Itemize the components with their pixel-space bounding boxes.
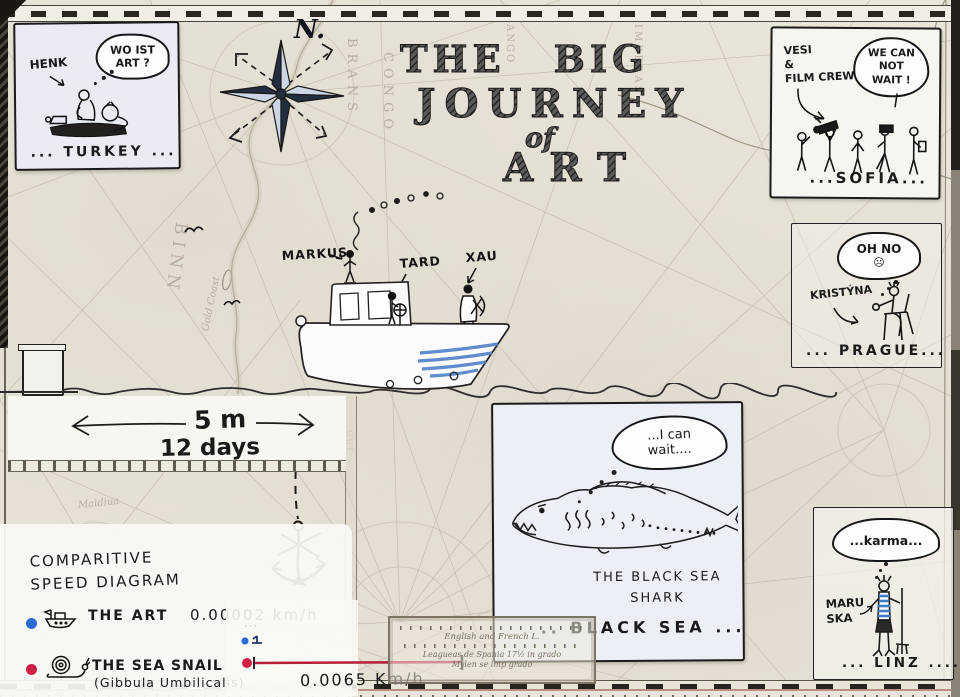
measurement-box: 5 m 12 days <box>8 396 346 472</box>
sofia-bubble-tail <box>891 93 901 109</box>
xau-figure <box>460 285 484 324</box>
bow-knob <box>296 316 306 326</box>
art-label: THE ART <box>88 608 168 624</box>
art-speed-dot <box>26 618 37 629</box>
sofia-caption: ...SOFIA... <box>809 169 928 188</box>
linz-label-arrow-icon <box>858 600 878 616</box>
snail-speed-dot <box>26 664 37 675</box>
title-line-1: THE BIG <box>400 37 649 81</box>
old-map-scale-box: English and French L. Leagueas de Spania… <box>388 616 596 684</box>
old-scale-bar <box>8 460 346 472</box>
snail-latin-label: (Gibbula Umbilicalis) <box>94 675 244 690</box>
artwork-map: BINN Gold Coast CONGO BRANS IMBERAS ANGO… <box>0 0 960 697</box>
bird-mark-icon <box>183 224 205 236</box>
turkey-thought-bubble: WO IST ART ? <box>95 33 169 80</box>
top-ruler-border <box>0 5 960 22</box>
scale-box-line-1: English and French L. <box>390 632 594 642</box>
sad-face-icon: ☹ <box>873 257 884 269</box>
distance-label: 5 m <box>194 404 247 435</box>
left-map-border <box>0 0 8 348</box>
dock-platform-line <box>0 391 78 393</box>
snail-icon <box>44 652 90 680</box>
duration-label: 12 days <box>160 434 260 462</box>
title-line-2: JOURNEY <box>414 81 685 127</box>
crew-label-tard: TARD <box>399 253 441 271</box>
crew-label-markus: MARKUS <box>281 245 348 263</box>
art-speed-faint-dots: ··· <box>244 627 264 631</box>
prague-figure <box>864 282 926 346</box>
shark-thought-bubble: ...I can wait.... <box>610 413 728 472</box>
prague-label-arrow-icon <box>832 304 864 328</box>
smoke-puffs <box>370 192 443 213</box>
title-block: THE BIG JOURNEY of ART <box>375 25 685 190</box>
compass-rose: N. <box>210 10 360 180</box>
turkey-character-label: HENK <box>29 55 68 72</box>
art-boat-icon <box>42 606 80 630</box>
prague-bubble-text: OH NO <box>857 243 902 256</box>
linz-figure <box>856 572 926 666</box>
title-line-4: ART <box>502 145 642 190</box>
linz-thought-bubble: ...karma... <box>832 518 940 562</box>
panel-sofia: VESI & FILM CREW WE CAN NOT WAIT ! ...SO… <box>769 26 941 199</box>
scale-box-line-2: Leagueas de Spania 17½ in grado <box>390 650 594 659</box>
sofia-speech-bubble: WE CAN NOT WAIT ! <box>853 37 929 98</box>
panel-prague: OH NO ☹ KRISTÝNA ... PRAGUE... <box>791 223 942 368</box>
speed-diagram-title: COMPARITIVE SPEED DIAGRAM <box>29 545 181 595</box>
prague-caption: ... PRAGUE... <box>806 343 946 359</box>
crew-label-xau: XAU <box>465 248 498 265</box>
scale-box-line-3: Mylen se imp grado <box>390 660 594 669</box>
shark-label: THE BLACK SEA SHARK <box>582 567 732 610</box>
thought-dot <box>612 470 617 475</box>
snail-label: THE SEA SNAIL <box>92 658 223 674</box>
smoke-squiggle <box>353 212 359 250</box>
thought-dot <box>110 70 114 74</box>
thought-dot <box>94 82 97 85</box>
dock-structure <box>22 348 64 396</box>
art-speed-marker <box>240 633 268 647</box>
compass-north-label: N. <box>293 15 325 45</box>
dock-structure-lip <box>18 344 66 351</box>
thought-dot <box>102 76 106 80</box>
turkey-caption: ... TURKEY ... <box>31 143 177 161</box>
thought-dot <box>884 562 888 566</box>
turkey-figure <box>44 85 155 138</box>
prague-thought-bubble: OH NO ☹ <box>837 232 921 280</box>
bird-mark-icon <box>222 298 242 308</box>
panel-turkey: HENK WO IST ART ? ... TURKEY ... <box>13 21 181 171</box>
linz-caption: ... LINZ .... <box>842 655 960 671</box>
panel-linz: ...karma... MARU SKA ... LINZ .... <box>813 507 954 680</box>
sofia-character-label: VESI & FILM CREW <box>783 41 854 85</box>
boat-the-art: MARKUS TARD XAU <box>268 188 520 400</box>
